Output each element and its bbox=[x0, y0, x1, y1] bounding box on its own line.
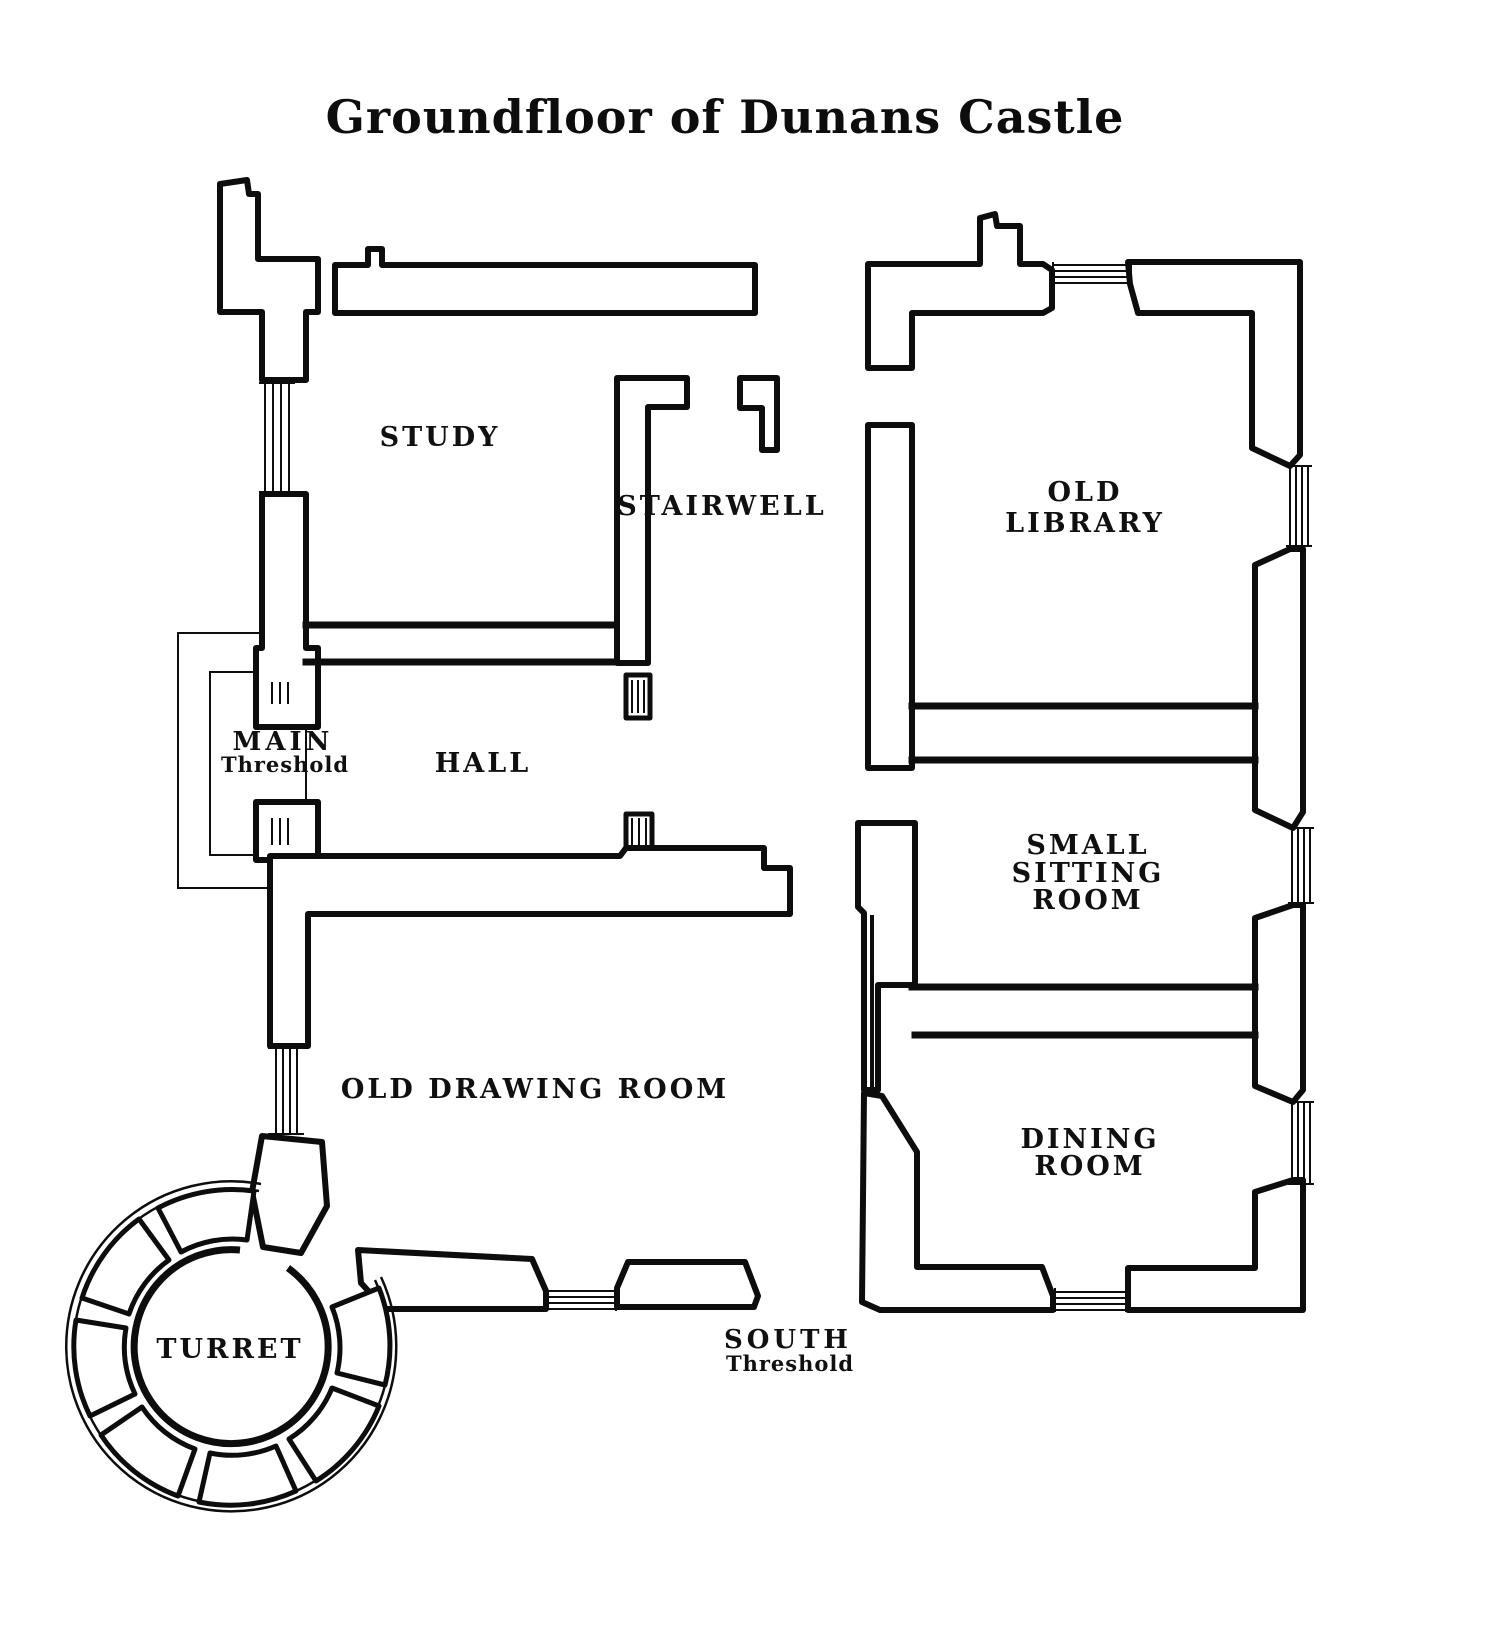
sitting-room-east-window bbox=[1288, 828, 1314, 903]
south-wall-east-of-door bbox=[617, 1262, 758, 1307]
old-library-label-line1: OLD bbox=[1048, 477, 1123, 508]
southeast-corner-wall bbox=[1128, 1180, 1303, 1310]
west-wall-library bbox=[868, 425, 912, 768]
small-sitting-room-label-line1: SMALL bbox=[1026, 830, 1149, 861]
page-title: Groundfloor of Dunans Castle bbox=[326, 90, 1125, 144]
library-north-window bbox=[1053, 262, 1131, 286]
hall-label: HALL bbox=[435, 748, 531, 779]
dining-room-east-window bbox=[1288, 1102, 1314, 1184]
floor-plan-page: Groundfloor of Dunans Castle STUDY STAIR… bbox=[0, 0, 1512, 1649]
dining-room-south-window bbox=[1055, 1288, 1126, 1312]
dining-room-label-line2: ROOM bbox=[1034, 1151, 1145, 1182]
library-northeast-wall bbox=[1128, 262, 1300, 466]
south-entrance-steps bbox=[546, 1287, 616, 1311]
old-library-label-line2: LIBRARY bbox=[1005, 508, 1165, 539]
turret-neck-wall bbox=[252, 1136, 327, 1253]
east-wall-library-to-sitting bbox=[1255, 549, 1303, 828]
drawing-room-north-and-west-wall bbox=[270, 848, 790, 1046]
stairwell-label: STAIRWELL bbox=[617, 491, 826, 522]
east-wall-sitting-to-dining bbox=[1255, 905, 1303, 1102]
south-threshold-label-line2: Threshold bbox=[726, 1351, 854, 1376]
main-threshold-label-line2: Threshold bbox=[221, 752, 349, 777]
northwest-chimney-wall bbox=[220, 180, 318, 380]
stairwell-wall-fragment bbox=[740, 378, 777, 450]
study-north-wall bbox=[335, 249, 755, 313]
study-label: STUDY bbox=[380, 422, 501, 453]
south-wall-west-of-door bbox=[358, 1250, 546, 1309]
library-east-window bbox=[1286, 466, 1312, 546]
turret-label: TURRET bbox=[156, 1334, 303, 1365]
library-northwest-wall-and-chimney bbox=[868, 214, 1052, 368]
small-sitting-room-label-line3: ROOM bbox=[1032, 885, 1143, 916]
west-wall-sitting-room bbox=[858, 823, 915, 1090]
old-drawing-room-label: OLD DRAWING ROOM bbox=[341, 1074, 729, 1105]
drawing-room-west-window bbox=[268, 1048, 304, 1134]
floor-plan-drawing: Groundfloor of Dunans Castle STUDY STAIR… bbox=[0, 0, 1512, 1649]
study-west-window bbox=[259, 383, 295, 492]
